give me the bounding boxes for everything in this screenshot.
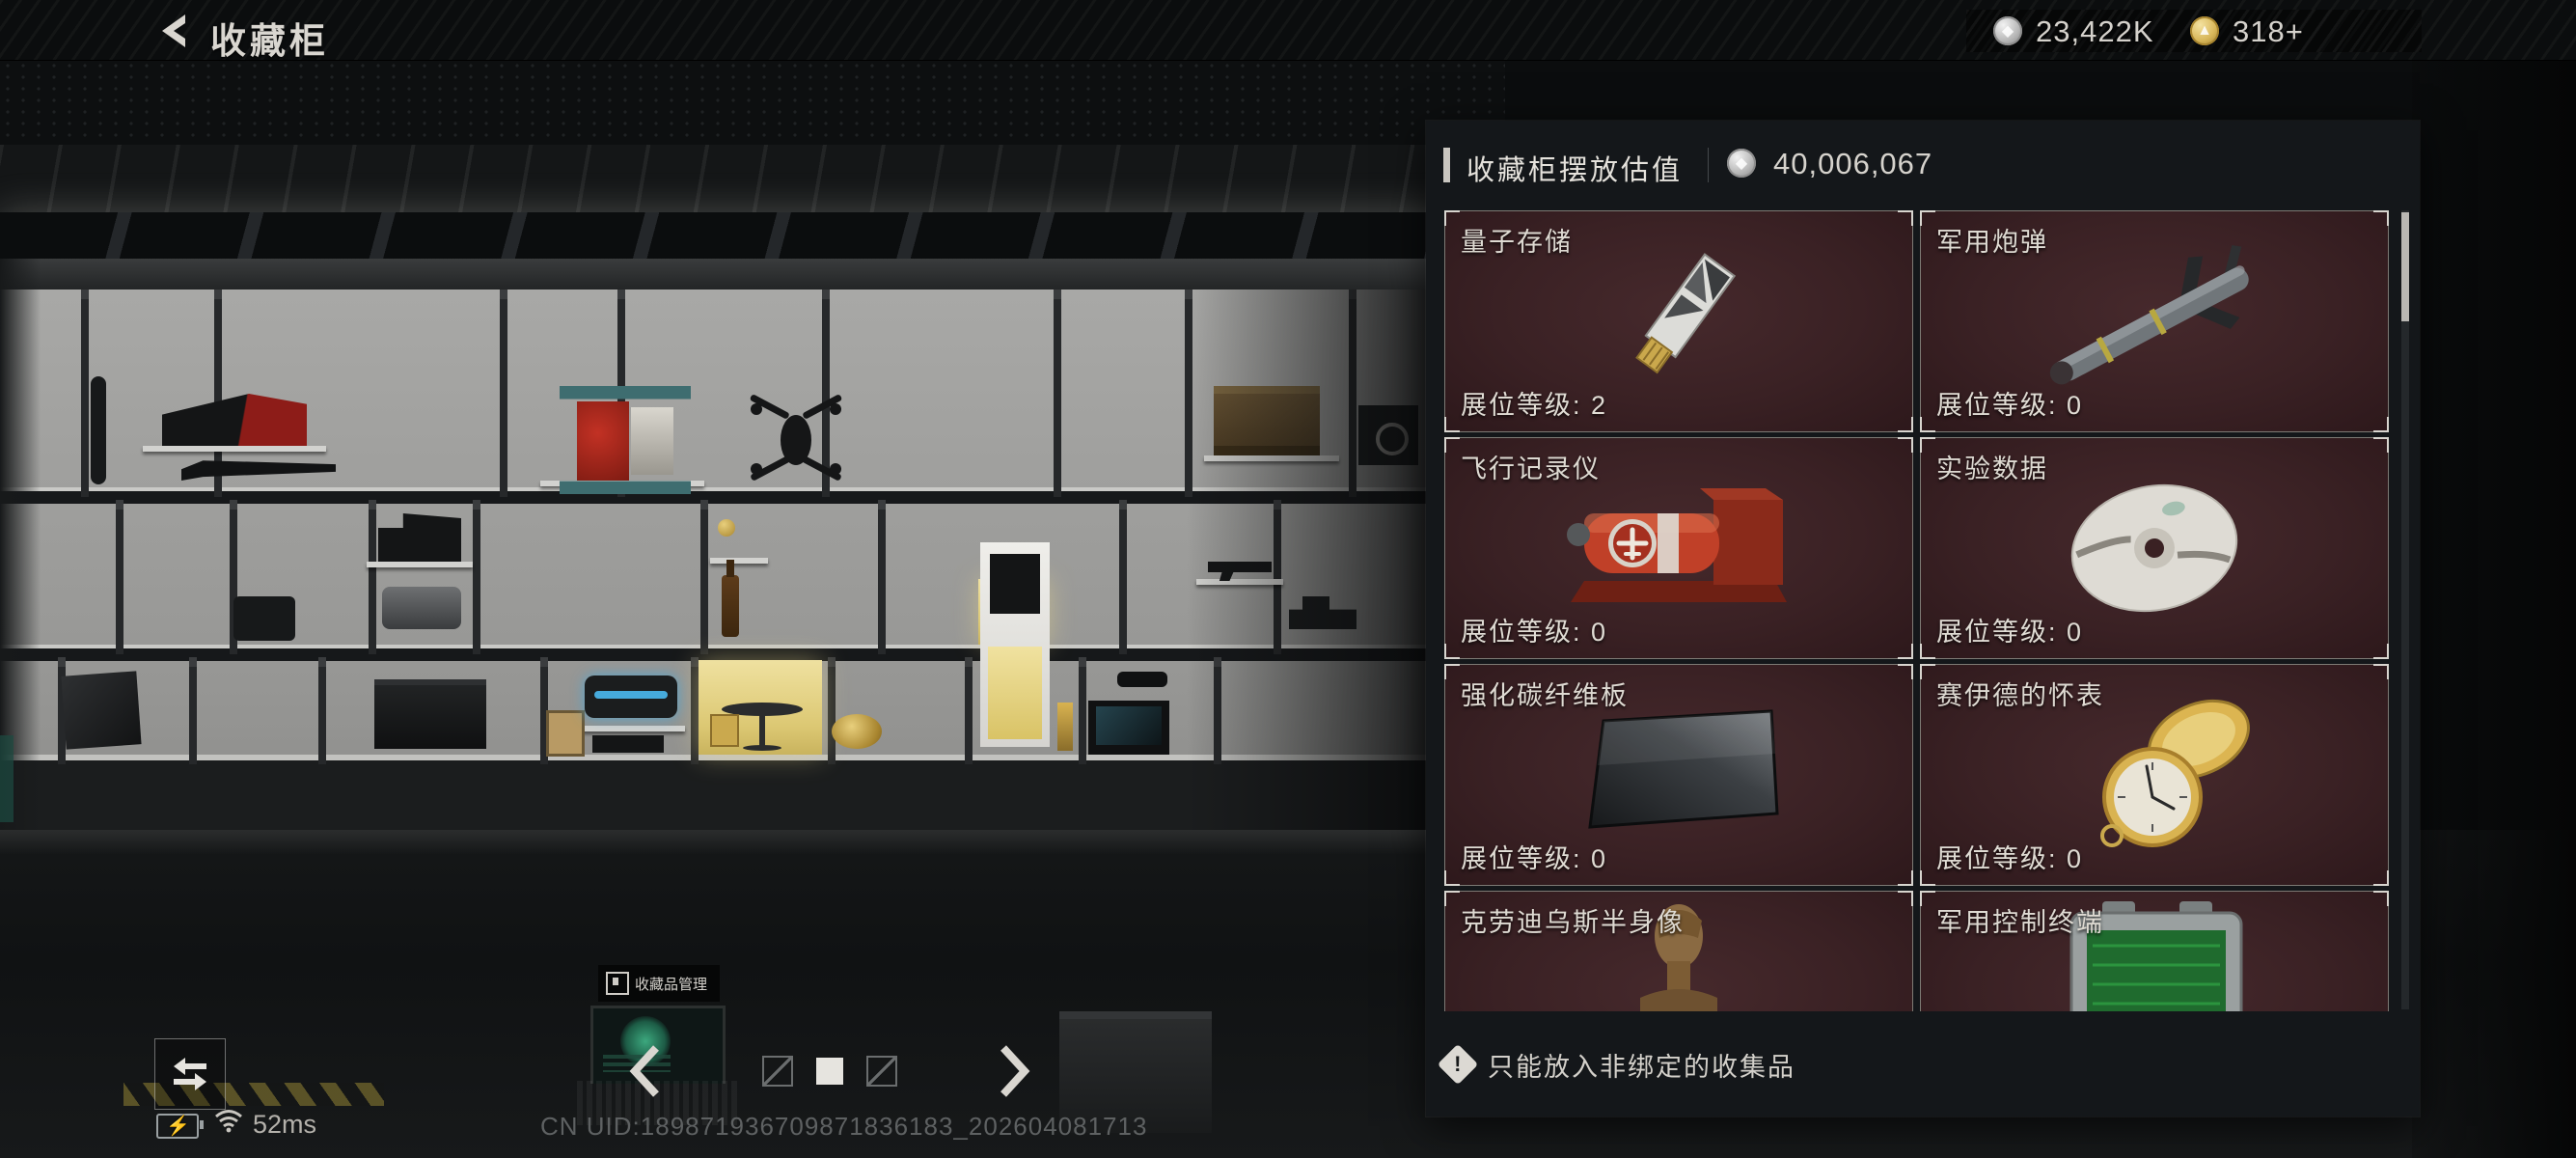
collectible-name: 军用炮弹 — [1936, 221, 2048, 259]
page-indicator-2-current[interactable] — [816, 1058, 843, 1085]
cabinet-marker-icon — [606, 972, 629, 995]
currency-strip: ◆ 23,422K ▲ 318+ — [1966, 10, 2422, 52]
view-swap-button[interactable] — [154, 1038, 226, 1110]
shelf-item-trophy — [1057, 703, 1073, 751]
collectible-name: 军用控制终端 — [1936, 901, 2104, 939]
collectible-level: 展位等级: 0 — [1936, 838, 2083, 875]
gold-coin-icon: ▲ — [2190, 16, 2219, 45]
shelf-item-armor-plate — [61, 671, 141, 749]
scrollbar-thumb[interactable] — [2401, 212, 2409, 321]
usb-drive-art — [1534, 244, 1823, 399]
floor-glow — [0, 830, 1447, 855]
shelf-item-black-case — [374, 679, 486, 749]
gold-currency-value[interactable]: 318+ — [2233, 14, 2304, 49]
collectible-card-carbon-plate[interactable]: 强化碳纤维板 展位等级: 0 — [1444, 664, 1913, 886]
shelf-item-dark-module — [233, 596, 295, 641]
header-separator — [1708, 148, 1709, 182]
back-button[interactable] — [152, 12, 195, 50]
shelf-item-framed-photo — [546, 710, 585, 757]
collectible-level: 展位等级: 2 — [1461, 384, 1607, 422]
swap-arrows-icon — [170, 1056, 210, 1092]
collectible-card-flight-recorder[interactable]: 飞行记录仪 展位等级: 0 — [1444, 437, 1913, 659]
shelf-item-bottle — [722, 575, 739, 637]
panel-tip: ! 只能放入非绑定的收集品 — [1443, 1026, 2389, 1103]
wifi-icon — [214, 1108, 243, 1133]
collectible-level: 展位等级: 0 — [1461, 611, 1607, 648]
data-disc-art — [2010, 471, 2299, 625]
panel-title: 收藏柜摆放估值 — [1466, 148, 1683, 188]
shelf-item-video-camera — [378, 513, 461, 562]
shelf-item-goggles — [1117, 672, 1167, 687]
collectible-card-experimental-data[interactable]: 实验数据 展位等级: 0 — [1920, 437, 2389, 659]
silver-coin-icon: ◆ — [1727, 149, 1756, 178]
collectible-level: 展位等级: 0 — [1936, 611, 2083, 648]
collectible-name: 赛伊德的怀表 — [1936, 675, 2104, 712]
collectible-level: 展位等级: 0 — [1461, 838, 1607, 875]
collectible-card-claudius-bust[interactable]: 克劳迪乌斯半身像 — [1444, 891, 1913, 1011]
collectible-grid: 量子存储 展位等级: 2 — [1444, 210, 2398, 1011]
collection-cabinet-screen: 收藏品管理 收藏柜 ◆ 23,422K ▲ 318+ 收藏柜摆放估值 ◆ 40,… — [0, 0, 2576, 1158]
pocket-watch-art — [2010, 693, 2299, 857]
shelf-item-drone — [739, 392, 853, 484]
exclamation-diamond-icon: ! — [1438, 1044, 1478, 1085]
ceiling-beams — [0, 145, 1505, 212]
header-accent-bar — [1443, 148, 1450, 182]
prev-page-chevron[interactable] — [627, 1044, 666, 1098]
shelf-item-blue-device — [585, 675, 677, 718]
next-page-chevron[interactable] — [994, 1044, 1032, 1098]
page-indicator-1[interactable] — [762, 1056, 793, 1087]
flight-recorder-art — [1534, 471, 1823, 625]
status-bar: ⚡ 52ms CN UID:189871936709871836183_2026… — [0, 1100, 2576, 1158]
shelf-item-small-frame — [710, 714, 739, 747]
shelf-item-trumpet — [181, 455, 336, 481]
valuation-total: 40,006,067 — [1773, 147, 1932, 181]
panel-header: 收藏柜摆放估值 ◆ 40,006,067 — [1426, 121, 2420, 209]
green-edge-accent — [0, 735, 14, 822]
collectible-card-pocket-watch[interactable]: 赛伊德的怀表 展位等级: 0 — [1920, 664, 2389, 886]
shelf-pagination — [627, 1037, 1032, 1105]
collectible-name: 飞行记录仪 — [1461, 448, 1601, 485]
missile-art — [2010, 244, 2299, 399]
tip-text: 只能放入非绑定的收集品 — [1488, 1046, 1795, 1084]
collectible-card-control-terminal[interactable]: 军用控制终端 — [1920, 891, 2389, 1011]
page-title: 收藏柜 — [210, 12, 329, 64]
shelf-item-rocket — [91, 376, 106, 484]
collection-terminal-marker[interactable]: 收藏品管理 — [598, 965, 720, 1002]
collectible-card-military-shell[interactable]: 军用炮弹 展位等级: 0 — [1920, 210, 2389, 432]
silver-currency-value[interactable]: 23,422K — [2036, 14, 2154, 49]
collectible-name: 实验数据 — [1936, 448, 2048, 485]
silver-coin-icon: ◆ — [1993, 16, 2022, 45]
shelf-item-gold-plate — [832, 714, 882, 749]
skylight — [0, 212, 1466, 259]
carbon-plate-art — [1534, 698, 1823, 852]
marker-label: 收藏品管理 — [635, 974, 707, 994]
collectible-level: 展位等级: 0 — [1936, 384, 2083, 422]
panel-scrollbar[interactable] — [2401, 210, 2409, 1009]
shelf-item-red-sled — [162, 394, 307, 446]
shelf-item-display-case — [980, 542, 1050, 747]
battery-icon: ⚡ — [156, 1114, 199, 1139]
ceiling-ledge — [0, 259, 1486, 289]
shelf-item-projector — [592, 735, 664, 753]
wall-shadow-fade — [1187, 289, 1447, 830]
top-bar: 收藏柜 ◆ 23,422K ▲ 318+ — [0, 0, 2576, 61]
collectible-name: 强化碳纤维板 — [1461, 675, 1629, 712]
collectible-card-quantum-storage[interactable]: 量子存储 展位等级: 2 — [1444, 210, 1913, 432]
collection-valuation-panel: 收藏柜摆放估值 ◆ 40,006,067 — [1426, 121, 2420, 1117]
shelf-item-engine-frame — [560, 386, 691, 494]
collectible-name: 克劳迪乌斯半身像 — [1461, 901, 1685, 939]
collectible-name: 量子存储 — [1461, 221, 1573, 259]
ping-value: 52ms — [253, 1110, 316, 1140]
shelf-item-monitor — [1088, 701, 1169, 755]
uid-text: CN UID:189871936709871836183_20260408171… — [540, 1112, 1147, 1142]
shelf-item-scope — [382, 587, 461, 629]
page-indicator-3[interactable] — [866, 1056, 897, 1087]
room-right-shadow — [2412, 60, 2576, 1158]
shelf-item-gold-coin — [718, 519, 735, 537]
